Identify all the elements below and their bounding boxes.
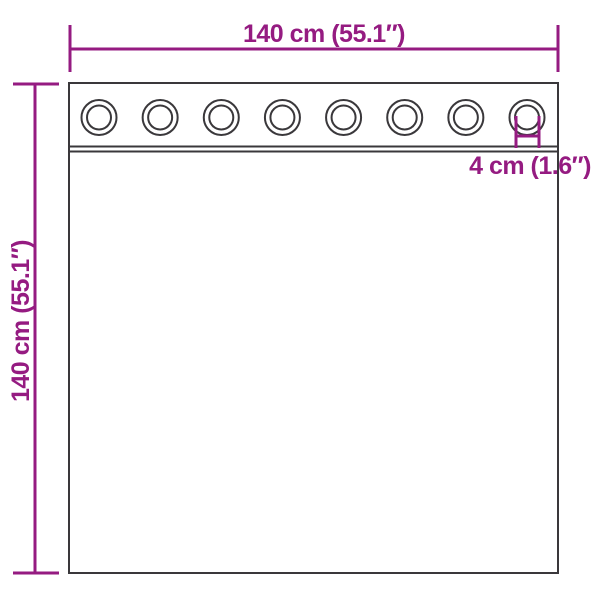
grommet-inner-ring-icon [332, 106, 356, 130]
width-dimension: 140 cm (55.1″) [70, 20, 558, 72]
grommet-inner-ring-icon [393, 106, 417, 130]
grommet-label: 4 cm (1.6″) [469, 152, 591, 180]
height-label: 140 cm (55.1″) [7, 240, 35, 402]
width-label: 140 cm (55.1″) [243, 20, 405, 48]
grommet-dimension: 4 cm (1.6″) [469, 116, 591, 180]
diagram-canvas: 140 cm (55.1″) 140 cm (55.1″) 4 cm (1.6″… [0, 0, 600, 600]
grommet-inner-ring-icon [270, 106, 294, 130]
height-dimension: 140 cm (55.1″) [7, 84, 59, 573]
grommet-inner-ring-icon [148, 106, 172, 130]
curtain-dimension-diagram: 140 cm (55.1″) 140 cm (55.1″) 4 cm (1.6″… [0, 0, 600, 600]
grommet-inner-ring-icon [209, 106, 233, 130]
grommet-row [82, 100, 545, 135]
grommet-inner-ring-icon [515, 106, 539, 130]
grommet-inner-ring-icon [87, 106, 111, 130]
grommet-inner-ring-icon [454, 106, 478, 130]
